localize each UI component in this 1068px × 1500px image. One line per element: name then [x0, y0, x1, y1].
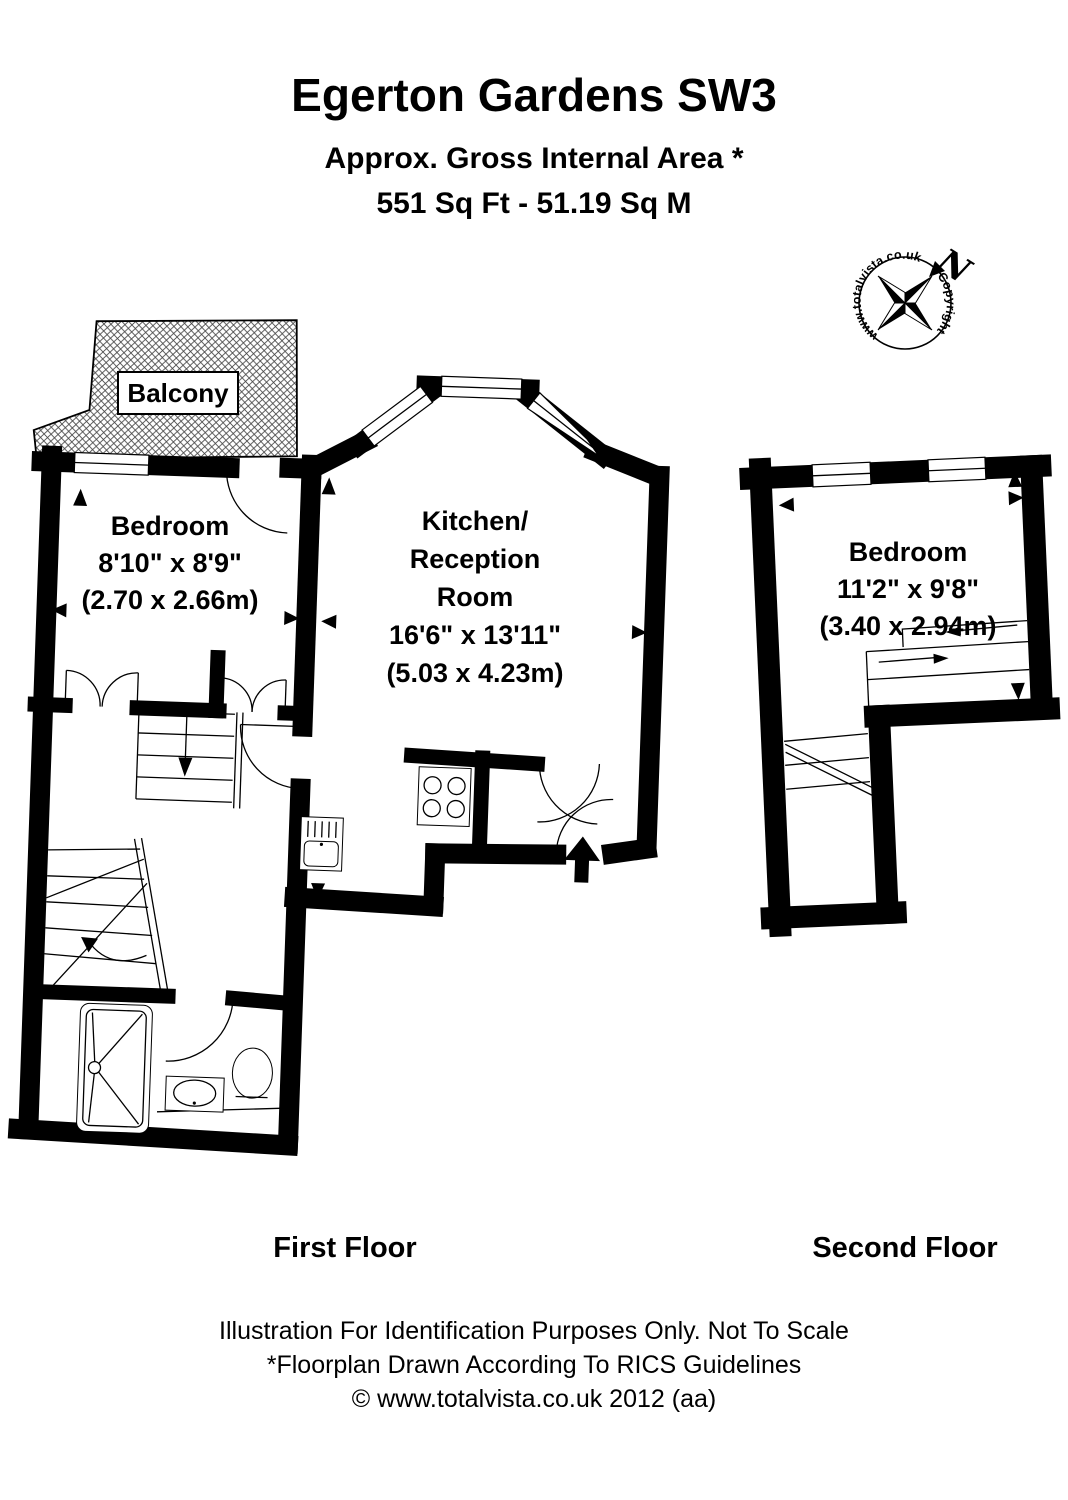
bathroom-shower [76, 1003, 152, 1133]
bedroom-first-floor-label: Bedroom 8'10" x 8'9" (2.70 x 2.66m) [55, 508, 285, 619]
entrance-arrow-icon [563, 836, 601, 883]
room-name: Kitchen/ [350, 502, 600, 540]
stairs-up-arrow-icon [81, 937, 99, 953]
second-floor-label: Second Floor [740, 1232, 1068, 1265]
compass: www.totalvista.co.uk Copyright N [850, 241, 979, 349]
second-floor-plan [750, 455, 1060, 926]
kitchen-reception-label: Kitchen/ Reception Room 16'6" x 13'11" (… [350, 502, 600, 692]
north-label: N [929, 241, 979, 293]
second-floor-walls [750, 457, 1060, 926]
bathroom-basin [165, 1076, 224, 1112]
kitchen-sink [300, 817, 344, 871]
copyright-line: © www.totalvista.co.uk 2012 (aa) [0, 1382, 1068, 1416]
room-name: Reception [350, 540, 600, 578]
subtitle-measurements: 551 Sq Ft - 51.19 Sq M [0, 187, 1068, 221]
disclaimer-line: *Floorplan Drawn According To RICS Guide… [0, 1348, 1068, 1382]
floorplan-drawing: www.totalvista.co.uk Copyright N [0, 0, 1068, 1500]
room-metric-dims: (5.03 x 4.23m) [350, 654, 600, 692]
floorplan-page: www.totalvista.co.uk Copyright N Egerton… [0, 0, 1068, 1500]
room-name: Room [350, 578, 600, 616]
subtitle-area: Approx. Gross Internal Area * [0, 142, 1068, 176]
room-metric-dims: (2.70 x 2.66m) [55, 582, 285, 619]
page-title: Egerton Gardens SW3 [0, 68, 1068, 122]
compass-star-icon [878, 276, 932, 330]
room-imperial-dims: 8'10" x 8'9" [55, 545, 285, 582]
first-floor-plan [9, 311, 664, 1157]
bathroom-toilet [232, 1047, 274, 1098]
room-imperial-dims: 11'2" x 9'8" [778, 571, 1038, 608]
balcony-label: Balcony [117, 371, 239, 415]
first-floor-label: First Floor [180, 1232, 510, 1265]
room-imperial-dims: 16'6" x 13'11" [350, 616, 600, 654]
stairs-down-arrow-icon [178, 757, 193, 776]
kitchen-hob [417, 767, 471, 827]
disclaimer-line: Illustration For Identification Purposes… [0, 1314, 1068, 1348]
room-metric-dims: (3.40 x 2.94m) [778, 608, 1038, 645]
bedroom-second-floor-label: Bedroom 11'2" x 9'8" (3.40 x 2.94m) [778, 534, 1038, 645]
room-name: Bedroom [55, 508, 285, 545]
footer-disclaimer: Illustration For Identification Purposes… [0, 1314, 1068, 1416]
room-name: Bedroom [778, 534, 1038, 571]
staircase-winder [43, 835, 173, 994]
